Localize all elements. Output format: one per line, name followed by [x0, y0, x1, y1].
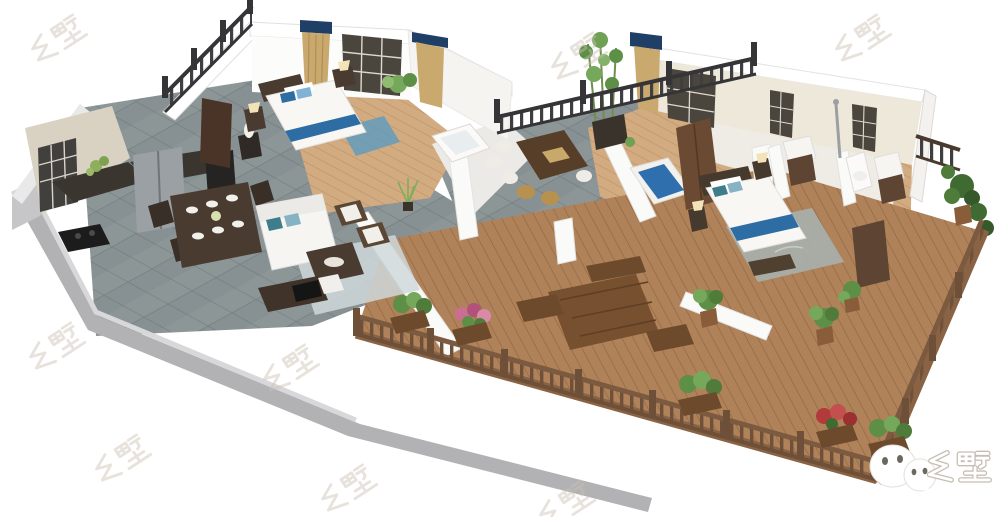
bath-window-2 — [770, 90, 794, 138]
floorplan-render: 乡墅 乡墅 — [0, 0, 1000, 517]
bath-window-3 — [852, 104, 877, 152]
burner — [75, 233, 81, 239]
drum-stool-white — [496, 140, 512, 152]
brand-badge: 乡墅 — [869, 445, 990, 497]
valance-1 — [300, 20, 332, 34]
dresser — [852, 220, 890, 288]
shower-head — [833, 99, 839, 105]
interior-door — [200, 98, 232, 168]
watermark-text: 乡墅 — [40, 16, 92, 46]
walkway-pillar-1 — [554, 218, 576, 264]
wechat-icon — [869, 445, 936, 497]
burner — [89, 230, 95, 236]
tea-tray — [324, 257, 344, 267]
toilet-seat — [853, 171, 867, 181]
drum-stool-rattan — [541, 191, 559, 205]
curtain-2 — [416, 42, 444, 108]
drum-stool-rattan — [517, 185, 535, 199]
kitchen-window-icon — [38, 138, 78, 212]
drum-stool-white — [576, 170, 592, 182]
watermark-mark — [92, 434, 151, 485]
brand-text: 乡墅 — [930, 456, 990, 489]
drum-stool-white — [502, 172, 518, 184]
floorplan-svg: 乡墅 乡墅 — [0, 0, 1000, 517]
small-plant — [625, 137, 635, 147]
table-flowers — [211, 211, 221, 221]
watermark-mark — [26, 322, 85, 373]
drum-stool-white — [486, 156, 502, 168]
watermark-mark — [318, 464, 377, 515]
watermark-mark — [832, 14, 891, 65]
